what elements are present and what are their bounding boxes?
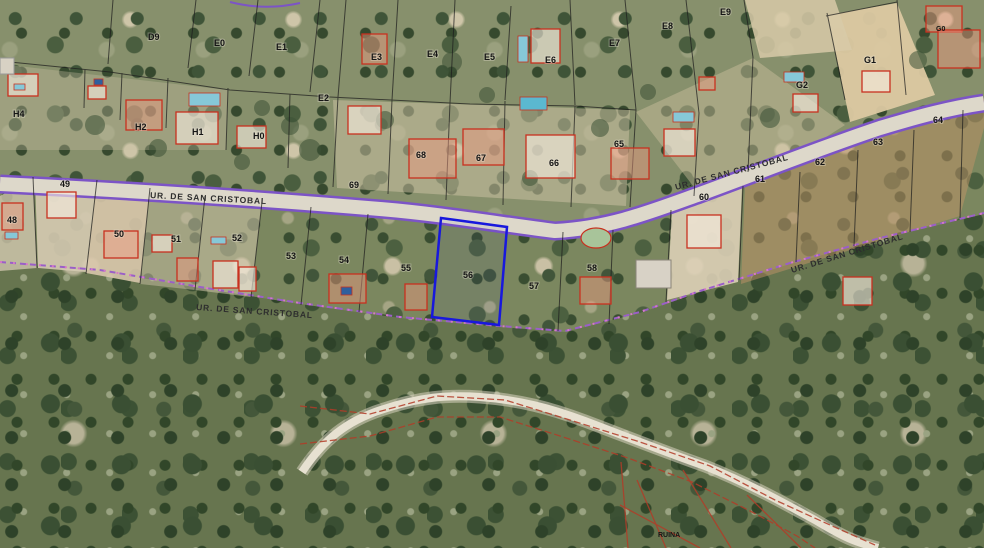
tree-icon (760, 108, 780, 128)
parcel-label-51: 51 (171, 234, 181, 244)
tree-icon (149, 139, 167, 157)
parcel-label-50: 50 (114, 229, 124, 239)
tree-icon (281, 117, 299, 135)
parcel-label-66: 66 (549, 158, 559, 168)
parcel-label-H1: H1 (192, 127, 204, 137)
street-name-label: UR. DE SAN CRISTOBAL (196, 302, 313, 320)
parcel-label-E1: E1 (276, 42, 287, 52)
parcel-label-E2: E2 (318, 93, 329, 103)
parcel-label-E3: E3 (371, 52, 382, 62)
swimming-pool (211, 237, 226, 244)
swimming-pool (518, 36, 528, 62)
building-outline (580, 277, 611, 304)
tree-icon (254, 100, 270, 116)
parcel-label-H2: H2 (135, 122, 147, 132)
parcel-label-E7: E7 (609, 38, 620, 48)
building-outline (177, 258, 198, 281)
building-outline (793, 94, 818, 112)
gray-building (0, 58, 14, 74)
swimming-pool (94, 79, 103, 85)
dirt-road (302, 396, 878, 548)
tree-icon (234, 154, 250, 170)
parcel-label-G0: G0 (936, 26, 945, 33)
parcel-label-E9: E9 (720, 7, 731, 17)
building-outline (664, 129, 695, 156)
parcel-label-54: 54 (339, 255, 349, 265)
swimming-pool (520, 97, 547, 110)
building-outline (152, 235, 172, 252)
building-outline (239, 267, 256, 291)
building-outline (843, 277, 872, 305)
building-outline (938, 30, 980, 68)
parcel-label-D9: D9 (148, 32, 160, 42)
building-outline (47, 192, 76, 218)
parcel-label-E6: E6 (545, 55, 556, 65)
parcel-label-E8: E8 (662, 21, 673, 31)
parcel-label-G2: G2 (796, 80, 808, 90)
ruin-parcel-line (621, 462, 628, 548)
parcel-label-56: 56 (463, 270, 473, 280)
ruin-parcel-line (620, 505, 700, 548)
parcel-label-RUINA: RUINA (658, 532, 680, 539)
parcel-label-H4: H4 (13, 109, 25, 119)
tree-icon (85, 115, 105, 135)
tree-icon (299, 139, 321, 161)
building-outline (611, 148, 649, 179)
parcel-label-57: 57 (529, 281, 539, 291)
building-outline (405, 284, 427, 310)
parcel-label-55: 55 (401, 263, 411, 273)
parcel-label-52: 52 (232, 233, 242, 243)
swimming-pool (14, 84, 25, 90)
parcel-label-H0: H0 (253, 131, 265, 141)
aerial-map: D9E0E1E2E3E4E5E6E7E8E9H4H2H1H0G1G2484950… (0, 0, 984, 548)
parcel-label-58: 58 (587, 263, 597, 273)
parcel-label-E5: E5 (484, 52, 495, 62)
swimming-pool (189, 93, 220, 106)
building-outline (526, 135, 575, 178)
parcel-label-62: 62 (815, 157, 825, 167)
tree-icon (909, 51, 927, 69)
swimming-pool (673, 112, 694, 122)
building-outline (862, 71, 890, 92)
kidney-pool (581, 228, 611, 248)
parcel-label-49: 49 (60, 179, 70, 189)
parcel-label-G1: G1 (864, 55, 876, 65)
parcel-label-69: 69 (349, 180, 359, 190)
building-outline (348, 106, 381, 134)
ruin-parcel-line (683, 470, 731, 548)
swimming-pool (5, 232, 18, 239)
parcel-label-67: 67 (476, 153, 486, 163)
parcel-label-E0: E0 (214, 38, 225, 48)
parcel-label-53: 53 (286, 251, 296, 261)
tree-icon (640, 84, 656, 100)
tree-icon (479, 87, 495, 103)
building-outline (213, 261, 238, 288)
building-outline (699, 77, 715, 90)
swimming-pool (341, 287, 352, 295)
parcel-label-65: 65 (614, 139, 624, 149)
parcel-label-61: 61 (755, 174, 765, 184)
parcel-label-48: 48 (7, 215, 17, 225)
map-overlay: D9E0E1E2E3E4E5E6E7E8E9H4H2H1H0G1G2484950… (0, 0, 984, 548)
top-right-sandy-ground (745, 0, 852, 58)
building-outline (687, 215, 721, 248)
parcel-label-64: 64 (933, 115, 943, 125)
parcel-label-60: 60 (699, 192, 709, 202)
parcel-label-63: 63 (873, 137, 883, 147)
boundary-arc-top (230, 2, 300, 7)
parcel-label-E4: E4 (427, 49, 438, 59)
tree-icon (591, 119, 609, 137)
parcel-label-68: 68 (416, 150, 426, 160)
gray-building (636, 260, 671, 288)
building-outline (88, 86, 106, 99)
